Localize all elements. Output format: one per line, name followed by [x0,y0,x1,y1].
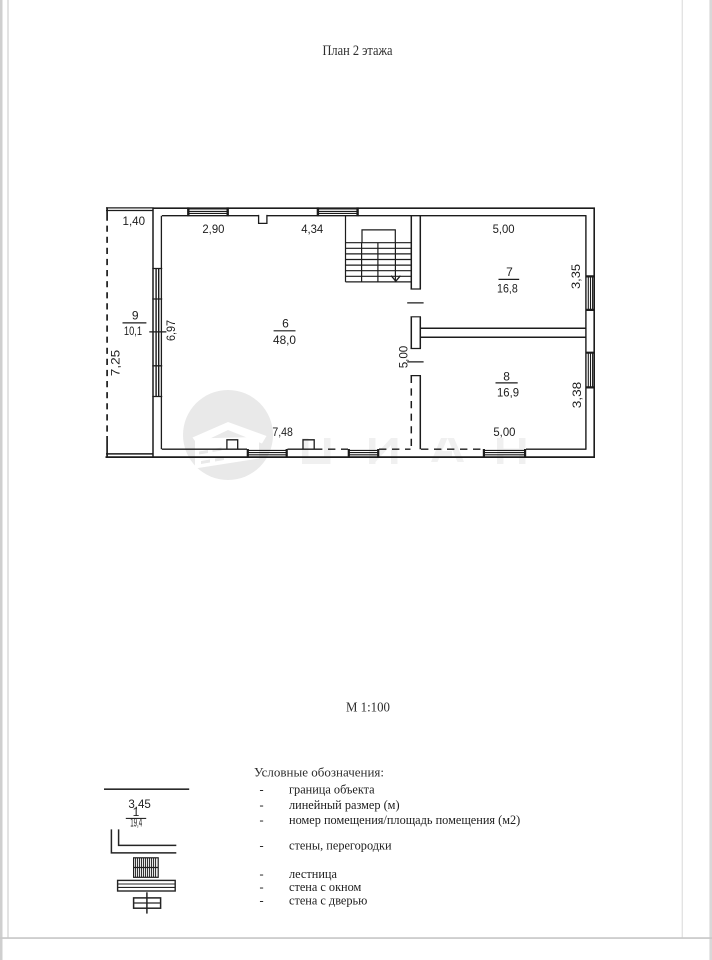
svg-text:-: - [260,880,264,894]
svg-text:8: 8 [503,370,510,384]
svg-text:9: 9 [132,309,139,323]
svg-text:-: - [260,839,264,853]
svg-text:16,8: 16,8 [497,281,518,295]
svg-text:7,25: 7,25 [108,349,122,376]
svg-text:стены, перегородки: стены, перегородки [289,839,392,853]
svg-text:7: 7 [506,265,513,279]
svg-text:10,1: 10,1 [124,324,143,338]
svg-text:-: - [260,894,264,908]
svg-text:2,90: 2,90 [202,222,224,236]
svg-text:19,4: 19,4 [130,815,142,829]
svg-text:5,00: 5,00 [493,222,515,236]
svg-text:7,48: 7,48 [272,425,293,439]
svg-text:5,00: 5,00 [397,345,411,368]
svg-text:стена с окном: стена с окном [289,880,362,894]
svg-text:линейный размер (м): линейный размер (м) [289,798,400,812]
svg-text:6,97: 6,97 [164,320,178,341]
svg-text:5,00: 5,00 [493,425,515,439]
svg-text:-: - [260,798,264,812]
svg-text:-: - [260,783,264,797]
svg-text:1,40: 1,40 [123,214,146,228]
svg-text:16,9: 16,9 [497,386,519,400]
svg-text:4,34: 4,34 [301,222,323,236]
svg-text:6: 6 [282,317,289,331]
svg-text:План 2 этажа: План 2 этажа [323,43,393,59]
svg-text:48,0: 48,0 [273,333,296,347]
svg-text:-: - [260,867,264,881]
svg-text:Условные обозначения:: Условные обозначения: [254,765,384,780]
svg-text:стена с дверью: стена с дверью [289,894,367,908]
svg-text:граница объекта: граница объекта [289,783,375,797]
svg-text:-: - [260,813,264,827]
svg-text:лестница: лестница [289,867,337,881]
svg-text:номер помещения/площадь помеще: номер помещения/площадь помещения (м2) [289,813,520,827]
svg-text:3,38: 3,38 [570,381,584,408]
svg-text:М 1:100: М 1:100 [346,700,390,715]
svg-text:3,35: 3,35 [569,264,583,289]
